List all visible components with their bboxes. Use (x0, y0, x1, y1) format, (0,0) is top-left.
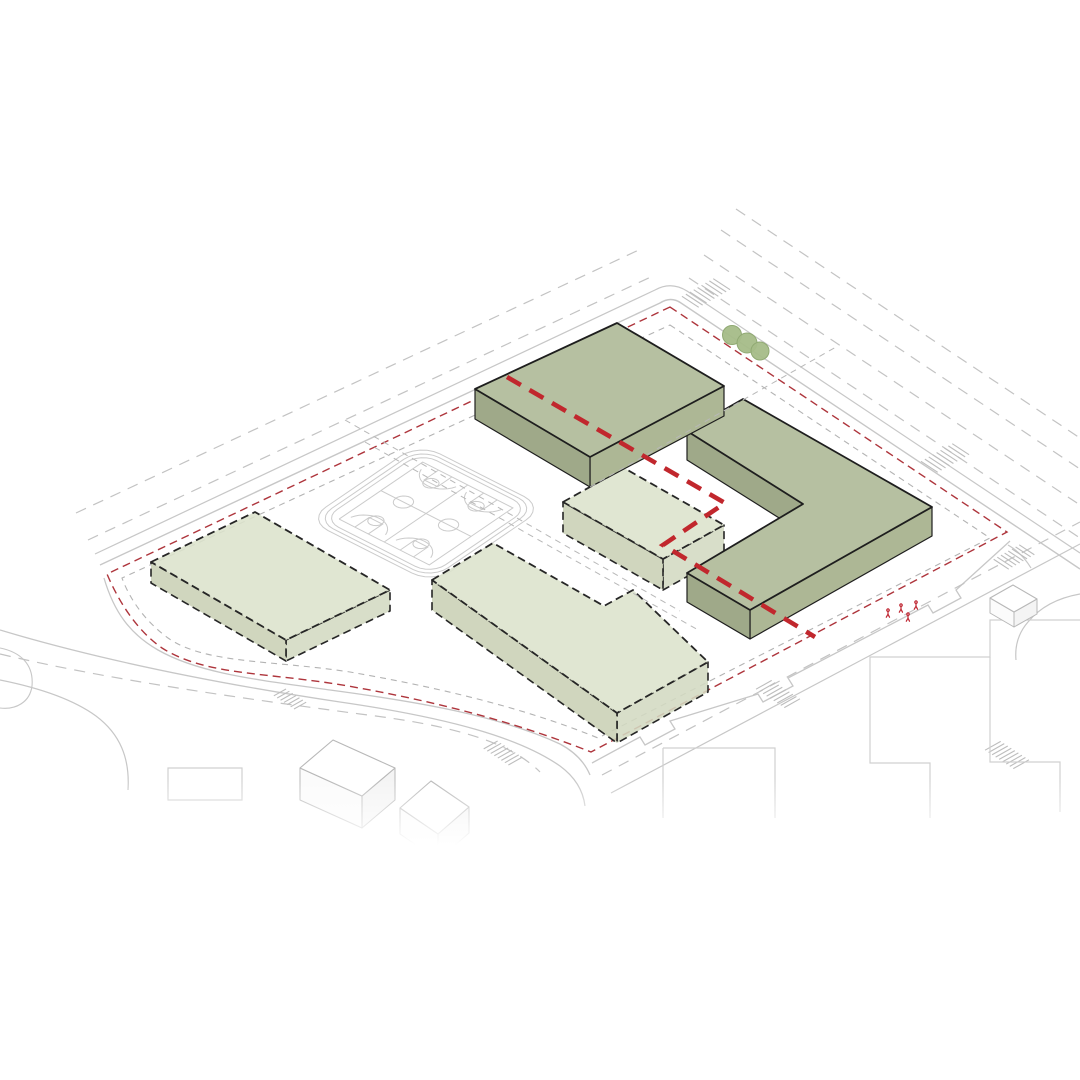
site-plan-svg (0, 0, 1080, 1080)
bottom-fade (0, 778, 1080, 1080)
tree-icon (751, 342, 769, 360)
diagram-canvas (0, 0, 1080, 1080)
